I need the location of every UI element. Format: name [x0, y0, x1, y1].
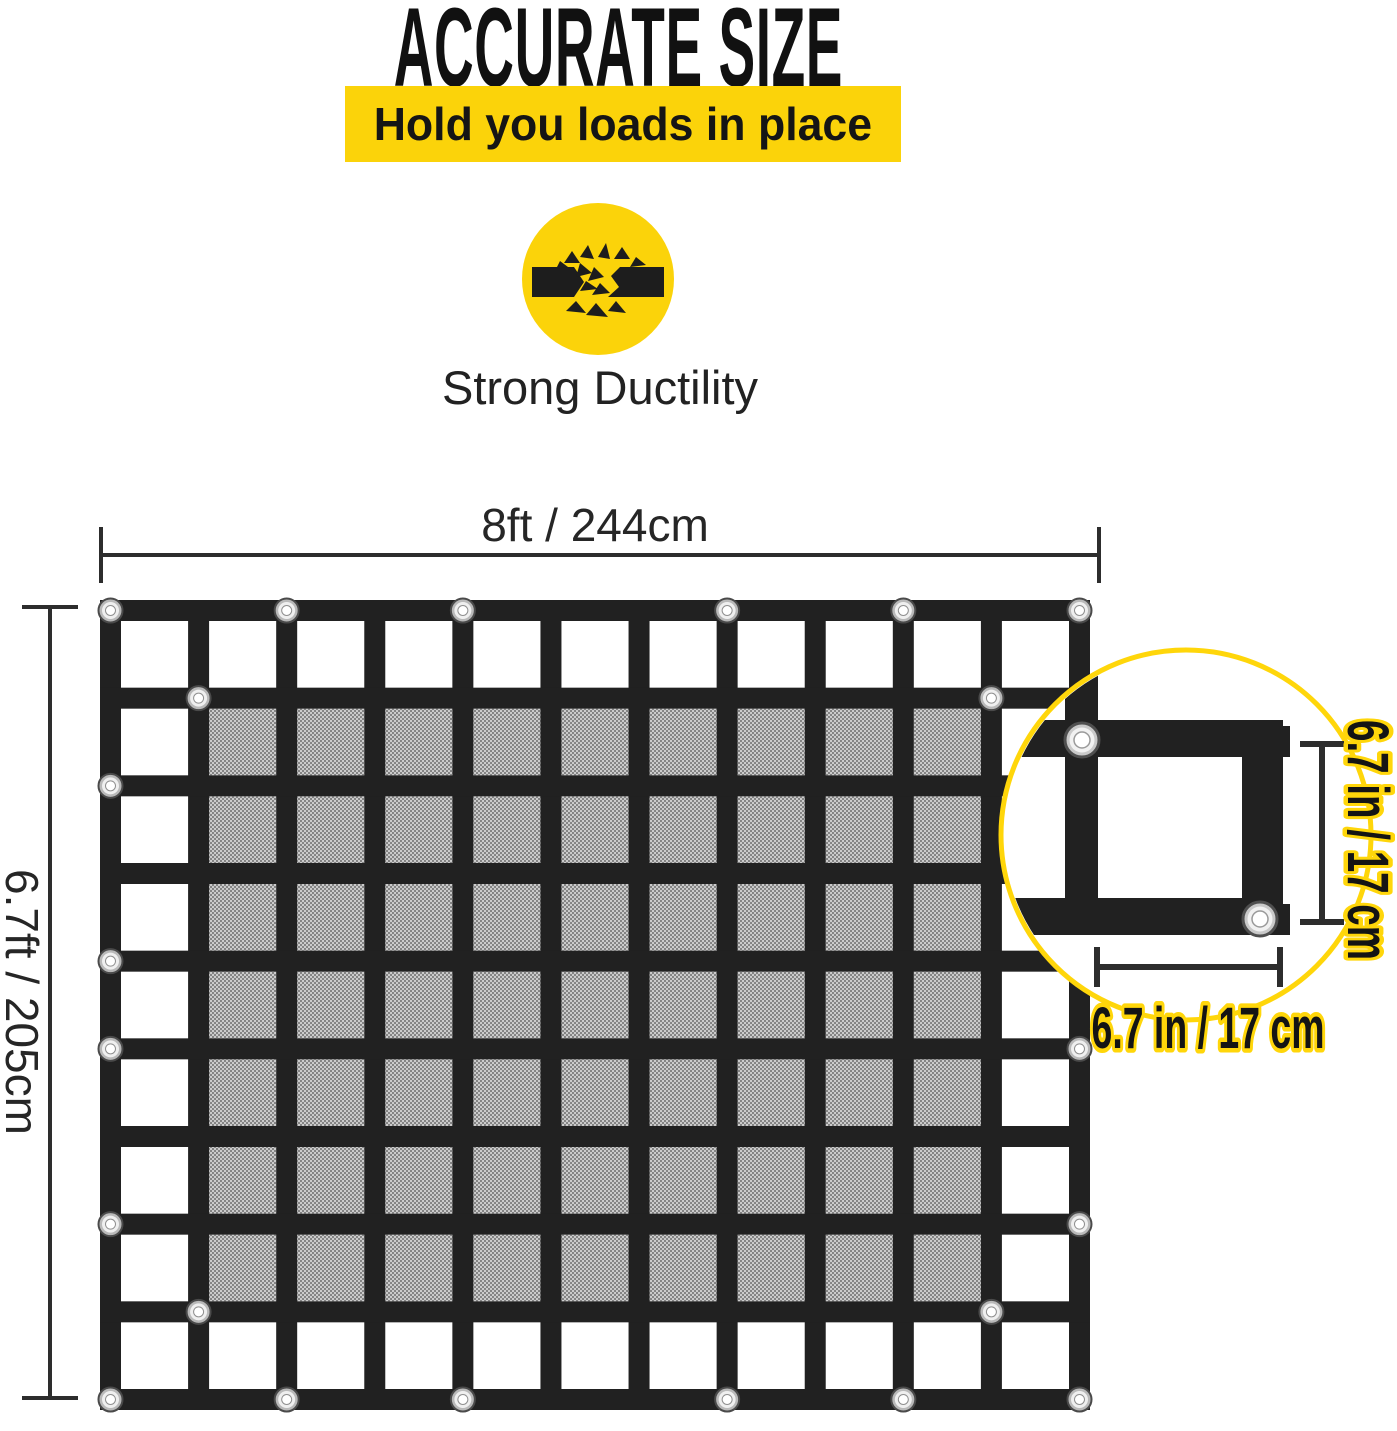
horizontal-strap	[100, 1038, 1090, 1059]
mesh-panel	[914, 1235, 981, 1302]
vertical-strap	[100, 600, 121, 1410]
horizontal-strap	[100, 1301, 1090, 1322]
vertical-strap	[540, 600, 561, 1410]
mesh-panel	[650, 709, 717, 776]
mesh-panel	[914, 796, 981, 863]
grommet-hole	[722, 606, 732, 616]
mesh-panel	[826, 1059, 893, 1126]
mesh-panel	[914, 1147, 981, 1214]
mesh-panel	[297, 709, 364, 776]
mesh-panel	[738, 1235, 805, 1302]
mesh-panel	[473, 1059, 540, 1126]
mesh-panel	[826, 709, 893, 776]
mesh-panel	[385, 1147, 452, 1214]
grommet-hole	[106, 606, 116, 616]
magnified-grommet	[1065, 723, 1099, 757]
mesh-panel	[209, 1235, 276, 1302]
grommet-hole	[1075, 1219, 1085, 1229]
vertical-strap	[717, 600, 738, 1410]
mesh-panel	[561, 1059, 628, 1126]
mesh-panel	[826, 972, 893, 1039]
grommet-hole	[986, 693, 996, 703]
horizontal-strap	[100, 600, 1090, 621]
mesh-panel	[561, 1147, 628, 1214]
mesh-panel	[385, 1059, 452, 1126]
grommet-hole	[1075, 1395, 1085, 1405]
mesh-panel	[561, 796, 628, 863]
grommet-hole	[106, 1219, 116, 1229]
mesh-panel	[297, 972, 364, 1039]
vertical-strap	[452, 600, 473, 1410]
mesh-panel	[209, 796, 276, 863]
width-dimension: 8ft / 244cm	[101, 499, 1099, 583]
mesh-panel	[473, 796, 540, 863]
mesh-panel	[385, 1235, 452, 1302]
grommet-hole	[722, 1395, 732, 1405]
magnifier: 6.7 in / 17 cm 6.7 in / 17 cm	[1000, 650, 1397, 1061]
mesh-panel	[561, 1235, 628, 1302]
mesh-panel	[738, 972, 805, 1039]
mesh-panel	[297, 884, 364, 951]
mesh-panel	[297, 1059, 364, 1126]
grommet-hole	[458, 1395, 468, 1405]
grommet-hole	[106, 781, 116, 791]
mesh-panel	[738, 1059, 805, 1126]
grommet-hole	[282, 606, 292, 616]
vertical-strap	[805, 600, 826, 1410]
mesh-panel	[826, 884, 893, 951]
grommet-hole	[898, 606, 908, 616]
mesh-panel	[209, 884, 276, 951]
mesh-panel	[914, 709, 981, 776]
mesh-panel	[385, 709, 452, 776]
grommet-hole	[106, 956, 116, 966]
mesh-panel	[914, 884, 981, 951]
mesh-panel	[826, 796, 893, 863]
grommet-hole	[194, 693, 204, 703]
mesh-panel	[650, 884, 717, 951]
mesh-panel	[738, 709, 805, 776]
height-dimension: 6.7ft / 205cm	[0, 607, 78, 1398]
grommet-hole	[282, 1395, 292, 1405]
mesh-panel	[473, 709, 540, 776]
horizontal-strap	[100, 1214, 1090, 1235]
mesh-panel	[561, 972, 628, 1039]
mesh-panel	[209, 972, 276, 1039]
mesh-panel	[297, 796, 364, 863]
grommet-hole	[1075, 606, 1085, 616]
horizontal-strap	[100, 863, 1090, 884]
horizontal-strap	[100, 775, 1090, 796]
vertical-strap	[364, 600, 385, 1410]
horizontal-strap	[100, 951, 1090, 972]
mesh-panel	[914, 972, 981, 1039]
vertical-strap	[276, 600, 297, 1410]
mesh-panel	[385, 884, 452, 951]
mesh-panel	[650, 1059, 717, 1126]
mesh-panel	[738, 884, 805, 951]
grommet-hole	[194, 1307, 204, 1317]
horizontal-strap	[100, 1389, 1090, 1410]
mesh-panel	[297, 1235, 364, 1302]
mesh-panel	[650, 796, 717, 863]
grommet-hole	[106, 1395, 116, 1405]
mesh-panel	[738, 1147, 805, 1214]
mesh-panel	[650, 1147, 717, 1214]
mesh-panel	[209, 1147, 276, 1214]
mesh-panel	[297, 1147, 364, 1214]
dimension-diagram: 8ft / 244cm 6.7ft / 205cm	[0, 0, 1397, 1431]
grommet-hole	[986, 1307, 996, 1317]
width-dimension-label: 8ft / 244cm	[481, 499, 709, 551]
mesh-panel	[826, 1235, 893, 1302]
mesh-panel	[473, 884, 540, 951]
cargo-net-infographic: ACCURATE SIZE Hold you loads in place St…	[0, 0, 1397, 1431]
grommet-hole	[898, 1395, 908, 1405]
grommet-hole	[458, 606, 468, 616]
horizontal-strap	[100, 1126, 1090, 1147]
grommet-hole	[1075, 1044, 1085, 1054]
mesh-panel	[209, 709, 276, 776]
vertical-strap	[188, 600, 209, 1410]
mesh-panel	[209, 1059, 276, 1126]
mesh-panel	[650, 1235, 717, 1302]
mesh-panel	[473, 972, 540, 1039]
cell-height-label: 6.7 in / 17 cm	[1335, 720, 1397, 960]
mesh-panel	[826, 1147, 893, 1214]
vertical-strap	[893, 600, 914, 1410]
mesh-panel	[385, 972, 452, 1039]
vertical-strap	[981, 600, 1002, 1410]
mesh-panel	[473, 1147, 540, 1214]
height-dimension-label: 6.7ft / 205cm	[0, 869, 48, 1135]
horizontal-strap	[100, 688, 1090, 709]
magnified-grommet	[1243, 902, 1277, 936]
mesh-panel	[650, 972, 717, 1039]
mesh-panel	[561, 709, 628, 776]
mesh-panel	[561, 884, 628, 951]
cargo-net	[99, 599, 1092, 1412]
mesh-panel	[738, 796, 805, 863]
vertical-strap	[629, 600, 650, 1410]
mesh-panel	[385, 796, 452, 863]
cell-width-label: 6.7 in / 17 cm	[1092, 996, 1325, 1061]
grommet-hole	[106, 1044, 116, 1054]
mesh-panel	[914, 1059, 981, 1126]
mesh-panel	[473, 1235, 540, 1302]
